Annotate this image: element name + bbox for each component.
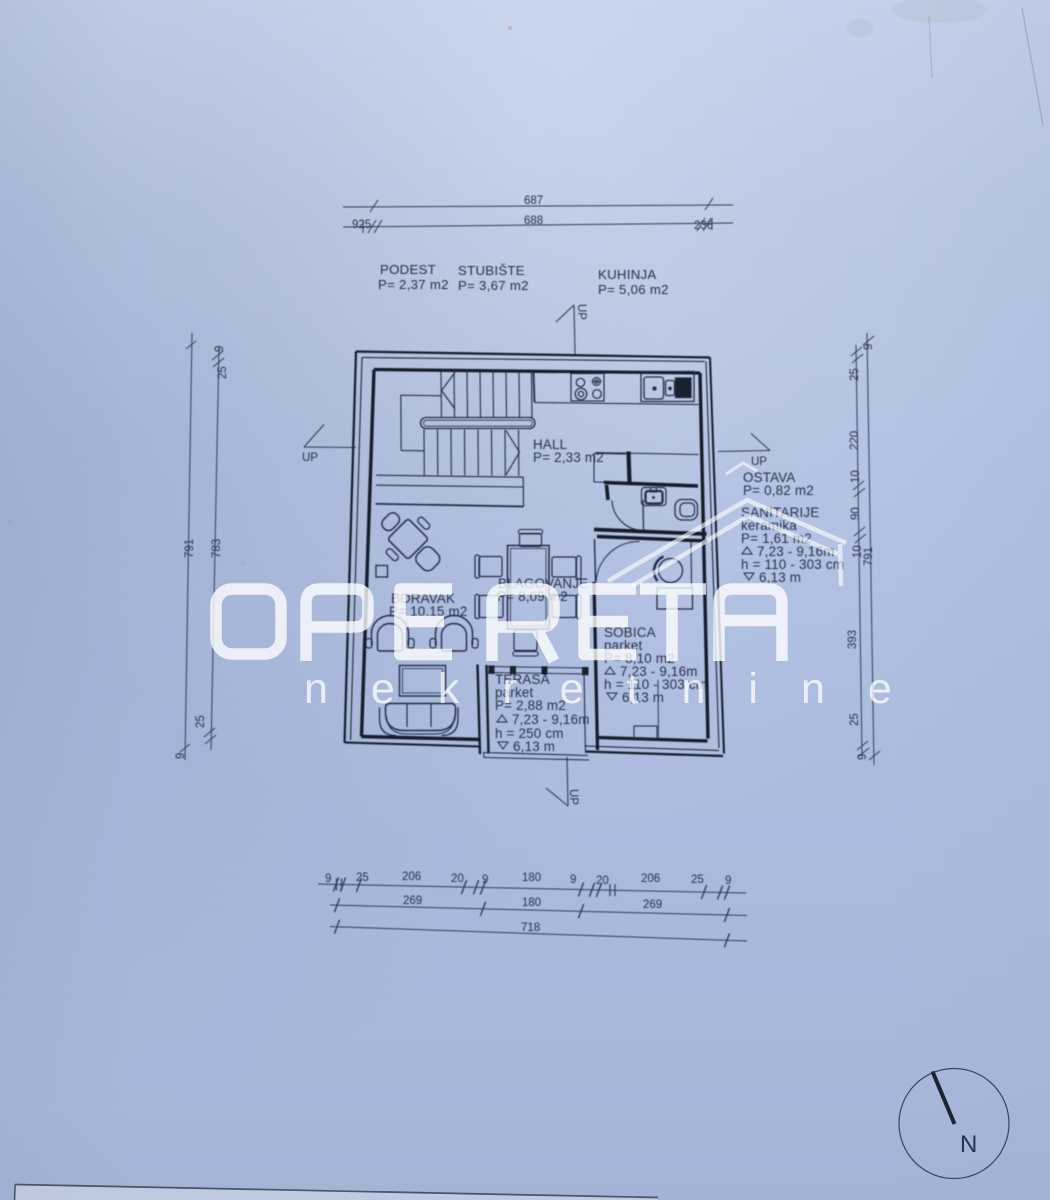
svg-text:791: 791 (184, 539, 196, 558)
svg-text:20: 20 (451, 873, 464, 885)
svg-text:25: 25 (356, 872, 369, 884)
svg-text:236: 236 (694, 220, 713, 232)
svg-text:25: 25 (691, 874, 704, 886)
svg-text:KUHINJA: KUHINJA (598, 267, 657, 282)
svg-text:9: 9 (725, 875, 731, 887)
svg-text:UP: UP (575, 304, 587, 320)
svg-text:393: 393 (847, 630, 859, 649)
svg-text:P= 3,67 m2: P= 3,67 m2 (458, 278, 529, 293)
svg-text:10: 10 (850, 470, 862, 483)
svg-text:718: 718 (521, 922, 540, 934)
svg-text:688: 688 (524, 215, 543, 227)
svg-text:9: 9 (863, 344, 875, 350)
svg-text:UP: UP (751, 456, 767, 468)
svg-text:220: 220 (849, 431, 861, 450)
svg-text:UP: UP (302, 452, 318, 464)
svg-text:UP: UP (567, 789, 579, 805)
svg-text:25: 25 (217, 366, 229, 379)
svg-text:180: 180 (522, 872, 541, 884)
svg-text:269: 269 (643, 899, 662, 911)
svg-text:nekretnine: nekretnine (304, 665, 935, 713)
svg-text:P= 2,37 m2: P= 2,37 m2 (378, 277, 449, 292)
svg-text:9: 9 (325, 873, 331, 885)
svg-text:206: 206 (402, 871, 421, 883)
svg-text:9: 9 (482, 874, 488, 886)
svg-text:9: 9 (175, 753, 187, 759)
svg-text:90: 90 (850, 507, 862, 520)
svg-text:N: N (960, 1131, 977, 1158)
svg-text:25: 25 (849, 713, 861, 726)
svg-text:P= 0,82 m2: P= 0,82 m2 (743, 483, 814, 498)
svg-text:25: 25 (849, 368, 861, 381)
svg-text:783: 783 (211, 539, 223, 558)
svg-text:25: 25 (195, 715, 207, 728)
svg-text:6,13 m: 6,13 m (759, 570, 801, 585)
svg-text:STUBIŠTE: STUBIŠTE (458, 263, 525, 278)
svg-text:206: 206 (641, 873, 660, 885)
svg-text:9: 9 (570, 874, 576, 886)
svg-text:687: 687 (524, 195, 543, 207)
svg-text:269: 269 (403, 895, 422, 907)
svg-text:9: 9 (857, 754, 869, 760)
svg-text:791: 791 (863, 547, 875, 566)
svg-text:20: 20 (596, 875, 609, 887)
svg-text:7,23 - 9,16m: 7,23 - 9,16m (512, 712, 590, 727)
svg-text:6,13 m: 6,13 m (513, 739, 555, 754)
svg-text:9: 9 (214, 346, 226, 352)
svg-text:PODEST: PODEST (380, 262, 436, 277)
svg-text:925: 925 (352, 219, 371, 231)
svg-text:P= 5,06 m2: P= 5,06 m2 (598, 282, 669, 297)
svg-text:180: 180 (522, 897, 541, 909)
svg-text:P= 2,33 m2: P= 2,33 m2 (533, 450, 604, 465)
